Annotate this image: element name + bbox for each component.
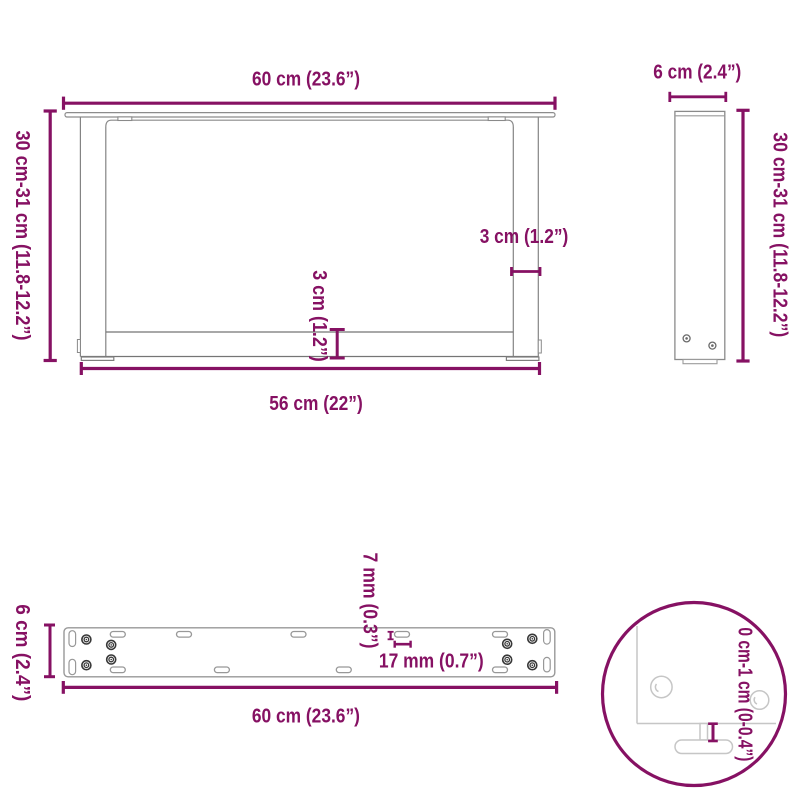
- svg-text:6 cm (2.4”): 6 cm (2.4”): [11, 604, 34, 701]
- svg-text:6 cm (2.4”): 6 cm (2.4”): [653, 60, 741, 83]
- svg-text:17 mm (0.7”): 17 mm (0.7”): [379, 649, 484, 672]
- svg-text:30 cm-31 cm (11.8-12.2”): 30 cm-31 cm (11.8-12.2”): [11, 131, 34, 341]
- svg-text:60 cm (23.6”): 60 cm (23.6”): [252, 67, 360, 90]
- svg-text:7 mm (0.3”): 7 mm (0.3”): [359, 553, 382, 649]
- svg-text:60 cm (23.6”): 60 cm (23.6”): [252, 705, 360, 728]
- svg-text:3 cm (1.2”): 3 cm (1.2”): [308, 270, 331, 362]
- svg-text:56 cm (22”): 56 cm (22”): [269, 392, 363, 415]
- svg-text:3 cm (1.2”): 3 cm (1.2”): [480, 225, 569, 248]
- svg-text:30 cm-31 cm (11.8-12.2”): 30 cm-31 cm (11.8-12.2”): [769, 132, 792, 337]
- svg-text:0 cm-1 cm (0-0.4”): 0 cm-1 cm (0-0.4”): [734, 627, 757, 761]
